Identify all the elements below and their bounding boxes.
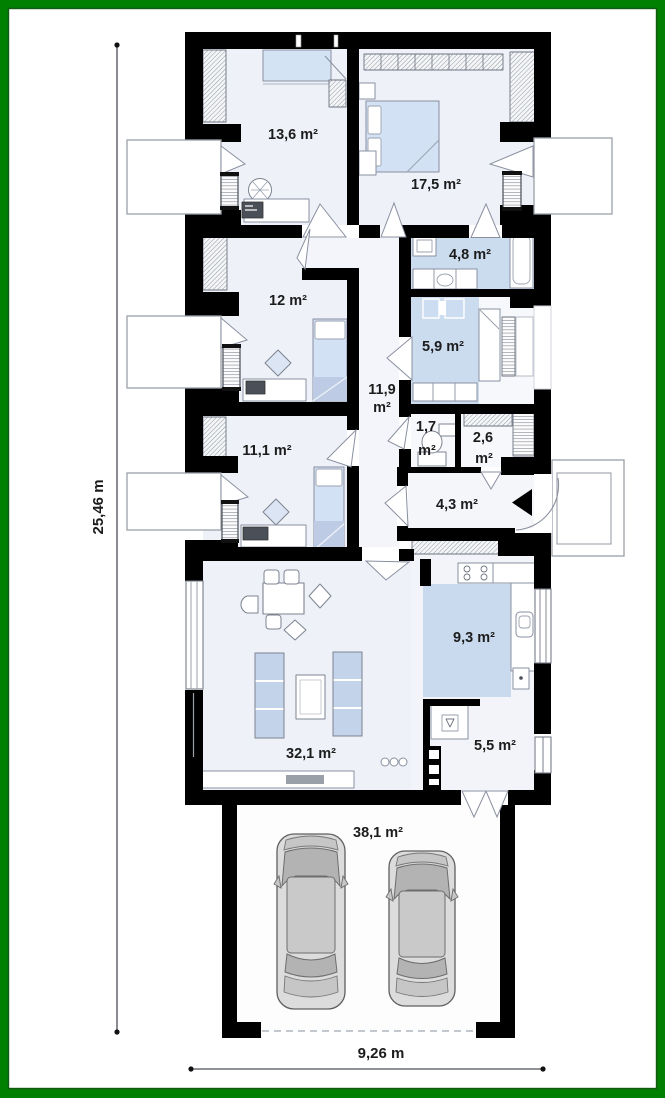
svg-text:38,1 m²: 38,1 m² — [353, 825, 403, 841]
svg-text:4,3 m²: 4,3 m² — [436, 497, 478, 513]
svg-text:2,6: 2,6 — [473, 430, 493, 446]
svg-text:17,5 m²: 17,5 m² — [411, 177, 461, 193]
svg-text:32,1 m²: 32,1 m² — [286, 746, 336, 762]
svg-text:11,9: 11,9 — [368, 382, 395, 398]
svg-text:1,7: 1,7 — [416, 419, 436, 435]
svg-text:9,3 m²: 9,3 m² — [453, 630, 495, 646]
svg-text:13,6 m²: 13,6 m² — [268, 127, 318, 143]
svg-text:11,1 m²: 11,1 m² — [242, 443, 291, 459]
svg-text:9,26 m: 9,26 m — [358, 1045, 405, 1062]
svg-text:5,5 m²: 5,5 m² — [474, 738, 516, 754]
svg-text:12 m²: 12 m² — [269, 293, 307, 309]
svg-text:25,46 m: 25,46 m — [90, 479, 107, 534]
svg-text:m²: m² — [373, 400, 391, 416]
svg-text:m²: m² — [418, 443, 436, 459]
svg-text:m²: m² — [475, 451, 493, 467]
svg-text:4,8 m²: 4,8 m² — [449, 247, 491, 263]
svg-text:5,9 m²: 5,9 m² — [422, 339, 464, 355]
